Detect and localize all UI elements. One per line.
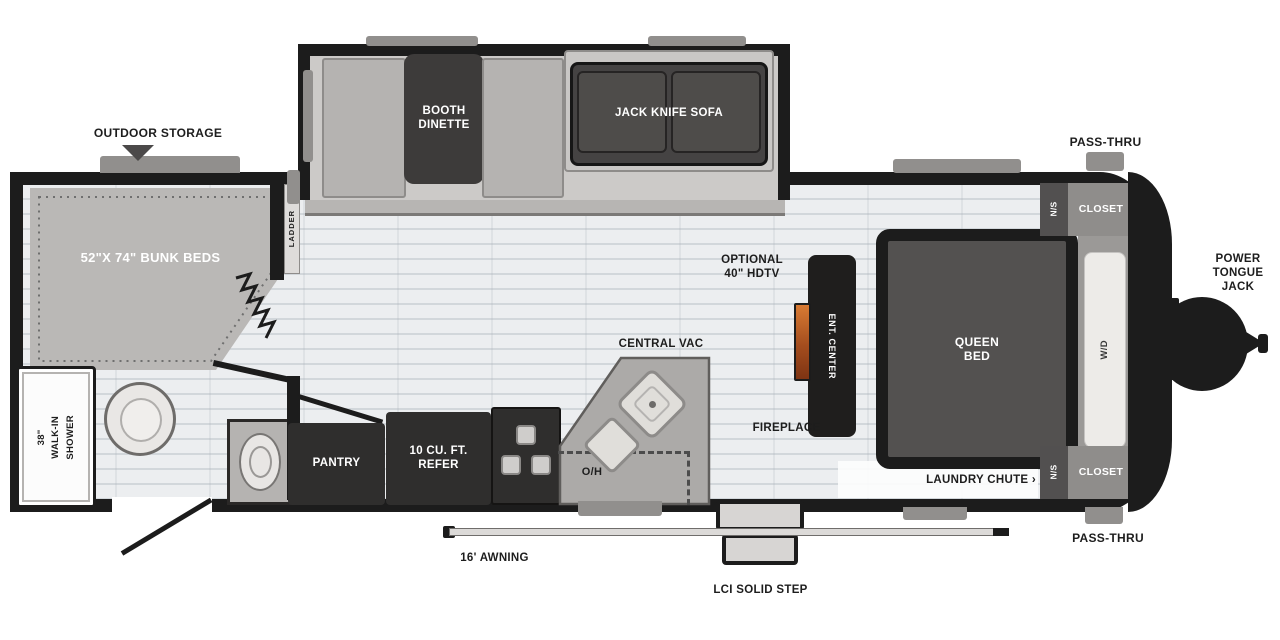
entertainment-center: ENT. CENTER bbox=[808, 255, 856, 437]
pantry-label: PANTRY bbox=[313, 457, 361, 471]
central-vac-label: CENTRAL VAC bbox=[596, 337, 726, 351]
pantry: PANTRY bbox=[288, 423, 385, 505]
dinette-bench-right bbox=[482, 58, 564, 198]
queen-bed-label: QUEEN BED bbox=[955, 335, 999, 363]
closet-bottom: CLOSET bbox=[1068, 446, 1134, 499]
optional-hdtv-label: OPTIONAL 40" HDTV bbox=[702, 253, 802, 281]
washer-dryer-label: W/D bbox=[1099, 340, 1111, 359]
faucet-icon bbox=[649, 401, 656, 408]
walk-in-shower-label: 38" WALK-IN SHOWER bbox=[35, 415, 78, 460]
outdoor-storage-label: OUTDOOR STORAGE bbox=[68, 126, 248, 141]
slideout-threshold bbox=[305, 198, 785, 216]
entry-step-lower bbox=[722, 534, 798, 565]
awning-bar bbox=[449, 528, 1001, 536]
pass-thru-door-top bbox=[1086, 152, 1124, 171]
overhead-cabinet-outline-side bbox=[687, 451, 690, 505]
nightstand-bottom: N/S bbox=[1040, 446, 1068, 499]
slideout-end-cap bbox=[303, 70, 313, 162]
laundry-chute-label: LAUNDRY CHUTE › bbox=[840, 473, 1036, 487]
outdoor-storage-hatch bbox=[100, 156, 240, 173]
stabilizer-tab-bottom bbox=[578, 501, 662, 516]
toilet-bowl bbox=[249, 446, 272, 478]
floorplan-canvas: 52"X 74" BUNK BEDS 38" WALK-IN SHOWER LA… bbox=[0, 0, 1280, 640]
queen-bed: QUEEN BED bbox=[876, 229, 1078, 469]
solid-step-label: LCI SOLID STEP bbox=[688, 583, 833, 597]
awning-end-cap-right bbox=[993, 528, 1009, 536]
walk-in-shower: 38" WALK-IN SHOWER bbox=[16, 366, 96, 508]
range-cooktop bbox=[491, 407, 561, 505]
bunk-ladder-label: LADDER bbox=[287, 210, 296, 247]
jack-knife-sofa: JACK KNIFE SOFA bbox=[570, 62, 768, 166]
burner-icon bbox=[501, 455, 521, 475]
burner-icon bbox=[531, 455, 551, 475]
nightstand-bottom-label: N/S bbox=[1049, 465, 1059, 480]
dinette-bench-left bbox=[322, 58, 406, 198]
fireplace bbox=[794, 303, 811, 381]
booth-dinette-label: BOOTH DINETTE bbox=[418, 105, 469, 132]
overhead-label: O/H bbox=[570, 466, 614, 479]
bathroom-sink-bowl bbox=[120, 398, 162, 442]
refrigerator: 10 CU. FT. REFER bbox=[386, 412, 491, 505]
closet-top: CLOSET bbox=[1068, 183, 1134, 236]
pass-thru-bottom-label: PASS-THRU bbox=[1048, 531, 1168, 546]
hitch-tip bbox=[1258, 334, 1268, 353]
fireplace-label: FIREPLACE bbox=[734, 421, 839, 435]
power-tongue-jack bbox=[1156, 297, 1248, 391]
outdoor-storage-arrow-icon bbox=[122, 145, 154, 161]
entry-step-upper bbox=[716, 500, 804, 531]
bunk-beds-label: 52"X 74" BUNK BEDS bbox=[48, 250, 253, 265]
slideout-rail-right-top bbox=[648, 36, 746, 46]
entertainment-center-label: ENT. CENTER bbox=[827, 313, 838, 379]
ladder-wall bbox=[270, 182, 284, 280]
burner-icon bbox=[516, 425, 536, 445]
power-tongue-jack-label: POWER TONGUE JACK bbox=[1198, 252, 1278, 294]
booth-dinette-table: BOOTH DINETTE bbox=[404, 54, 484, 184]
closet-bottom-label: CLOSET bbox=[1079, 466, 1123, 478]
bunk-beds-shape bbox=[28, 186, 308, 372]
nightstand-top: N/S bbox=[1040, 183, 1068, 236]
pass-thru-door-bottom bbox=[1085, 507, 1123, 524]
nightstand-top-label: N/S bbox=[1049, 202, 1059, 217]
bedroom-slide-rail-bottom bbox=[903, 507, 967, 520]
jack-knife-sofa-label: JACK KNIFE SOFA bbox=[615, 107, 723, 121]
slideout-rail-left-top bbox=[366, 36, 478, 46]
pass-thru-top-label: PASS-THRU bbox=[1048, 135, 1163, 150]
closet-top-label: CLOSET bbox=[1079, 203, 1123, 215]
awning-label: 16' AWNING bbox=[437, 551, 552, 565]
slideout-side-tab bbox=[287, 170, 300, 204]
washer-dryer-prep: W/D bbox=[1084, 252, 1126, 448]
bedroom-slide-rail-top bbox=[893, 159, 1021, 173]
refrigerator-label: 10 CU. FT. REFER bbox=[410, 445, 468, 472]
